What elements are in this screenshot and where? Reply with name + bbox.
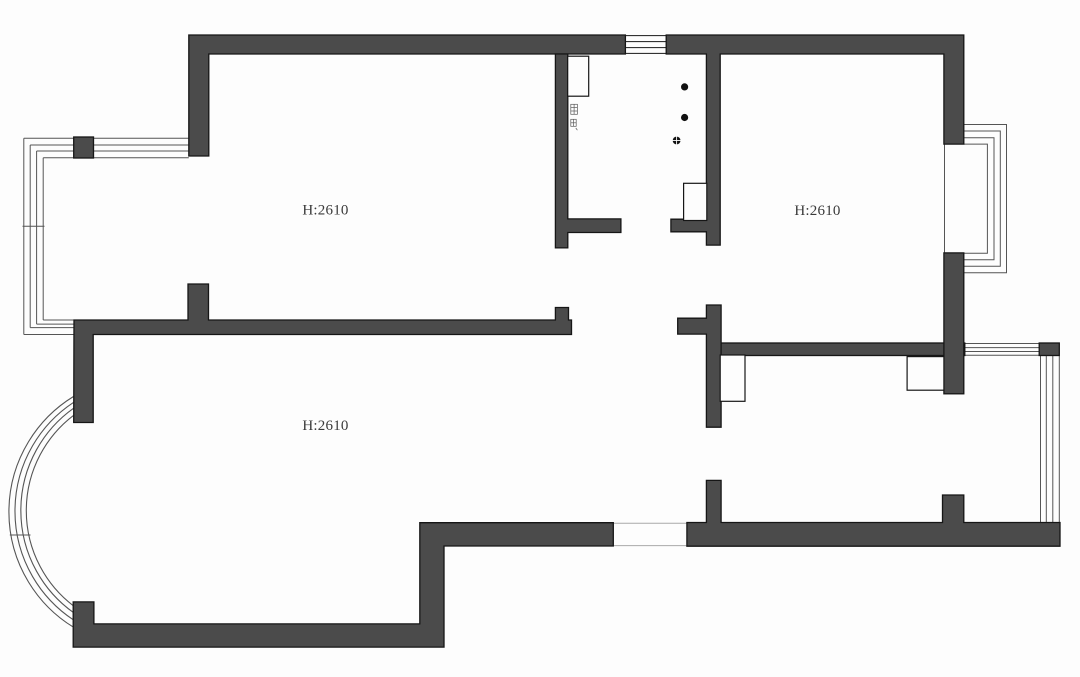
svg-text:H:2610: H:2610 <box>302 418 348 434</box>
svg-text:H:2610: H:2610 <box>302 202 348 218</box>
svg-text:H:2610: H:2610 <box>794 203 840 219</box>
